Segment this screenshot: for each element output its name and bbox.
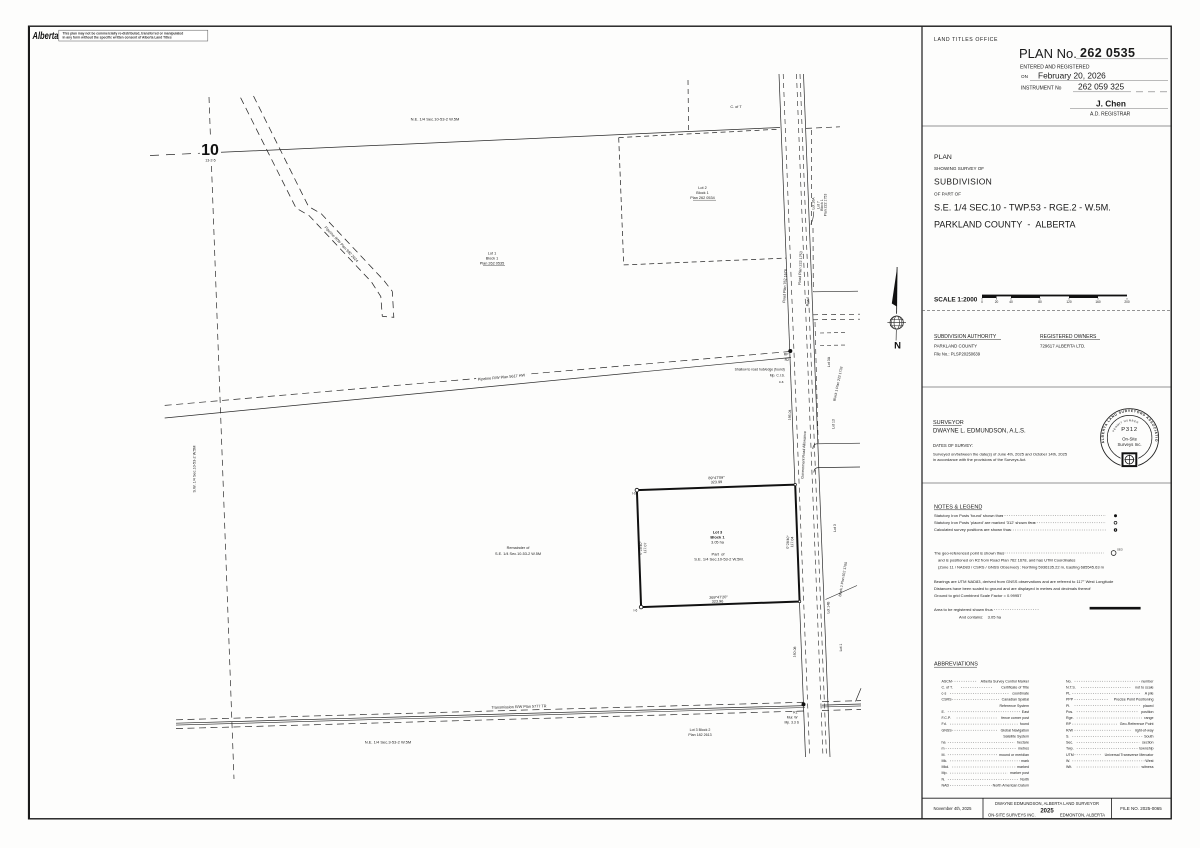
svg-text:Statutory Iron Posts 'placed': Statutory Iron Posts 'placed' are marked…	[934, 520, 1036, 525]
svg-text:J. Chen: J. Chen	[1096, 99, 1126, 109]
svg-text:hectare: hectare	[1017, 741, 1029, 745]
svg-text:N.T.S.: N.T.S.	[1066, 685, 1076, 689]
svg-text:S.E. 1/4 Sec.10-53-2 W.5M.: S.E. 1/4 Sec.10-53-2 W.5M.	[694, 556, 744, 561]
svg-text:Universal Transverse Mercator: Universal Transverse Mercator	[1105, 753, 1155, 757]
svg-text:I-6: I-6	[632, 492, 636, 496]
svg-text:S.W. 1/4 Sec.10-53-2 W.5M: S.W. 1/4 Sec.10-53-2 W.5M	[193, 446, 197, 493]
svg-text:Sec.: Sec.	[1066, 741, 1073, 745]
svg-text:C. of T.: C. of T.	[942, 685, 954, 689]
svg-text:November 4th, 2025: November 4th, 2025	[934, 806, 973, 811]
svg-text:40: 40	[1009, 300, 1013, 304]
svg-text:Satellite System: Satellite System	[1003, 735, 1029, 739]
svg-text:ON: ON	[1021, 74, 1028, 79]
svg-text:N.E. 1/4 Sec.10-53-2 W.5M: N.E. 1/4 Sec.10-53-2 W.5M	[411, 117, 460, 122]
svg-text:The geo-referenced point is sh: The geo-referenced point is shown thus	[934, 551, 1004, 556]
svg-text:No.: No.	[1066, 679, 1072, 683]
svg-text:Ground to grid Combined Scale: Ground to grid Combined Scale Factor = 0…	[934, 593, 1022, 598]
svg-text:range: range	[1144, 716, 1153, 720]
svg-text:File No.: PLSP20250639: File No.: PLSP20250639	[934, 352, 981, 357]
svg-text:mark: mark	[1021, 759, 1029, 763]
svg-text:section: section	[1142, 741, 1153, 745]
svg-text:INSTRUMENT No: INSTRUMENT No	[1021, 86, 1062, 92]
svg-text:Bearings are UTM NAD83, derive: Bearings are UTM NAD83, derived from GNS…	[934, 579, 1114, 584]
svg-text:marked: marked	[1017, 765, 1029, 769]
svg-text:117.04: 117.04	[790, 537, 794, 548]
svg-text:R2: R2	[785, 358, 789, 362]
svg-text:160.08: 160.08	[793, 646, 798, 657]
svg-text:S.: S.	[1066, 735, 1069, 739]
svg-text:Statutory Iron Posts 'found' s: Statutory Iron Posts 'found' shown thus	[934, 513, 1003, 518]
svg-text:DWAYNE EDMUNDSON, ALBERTA LAND: DWAYNE EDMUNDSON, ALBERTA LAND SURVEYOR	[995, 801, 1099, 806]
svg-text:R1: R1	[793, 711, 797, 715]
svg-text:number: number	[1141, 679, 1154, 683]
svg-text:RP: RP	[1066, 722, 1072, 726]
svg-text:m: m	[942, 747, 945, 751]
svg-text:P312: P312	[1121, 427, 1138, 433]
svg-text:mound or meridian: mound or meridian	[999, 753, 1029, 757]
svg-text:PLAN: PLAN	[934, 154, 952, 161]
svg-text:N.: N.	[942, 777, 946, 781]
svg-text:c-s: c-s	[779, 380, 784, 384]
svg-text:SCALE 1:2000: SCALE 1:2000	[934, 297, 978, 304]
svg-text:Mk.: Mk.	[942, 759, 948, 763]
svg-text:E.: E.	[942, 710, 945, 714]
svg-text:Pos.: Pos.	[1066, 710, 1073, 714]
svg-text:marker post: marker post	[1010, 771, 1029, 775]
svg-text:PLAN No.: PLAN No.	[1019, 46, 1077, 61]
svg-text:Area to be registered shown th: Area to be registered shown thus	[934, 607, 993, 612]
svg-text:ha: ha	[942, 741, 946, 745]
svg-text:Block 1: Block 1	[696, 191, 708, 195]
svg-text:GEO: GEO	[1117, 548, 1123, 552]
svg-text:Canadian Spatial: Canadian Spatial	[1002, 698, 1030, 702]
svg-text:C. of T: C. of T	[730, 105, 742, 109]
svg-text:SHOWING SURVEY OF: SHOWING SURVEY OF	[934, 166, 984, 171]
svg-text:Lot 3: Lot 3	[833, 524, 837, 532]
svg-text:CSRS: CSRS	[942, 698, 953, 702]
svg-text:position: position	[1141, 710, 1153, 714]
svg-text:Wit.: Wit.	[1066, 765, 1072, 769]
svg-text:729617 ALBERTA LTD.: 729617 ALBERTA LTD.	[1040, 344, 1085, 349]
svg-text:323.96: 323.96	[712, 599, 724, 603]
svg-text:A.D. REGISTRAR: A.D. REGISTRAR	[1090, 112, 1131, 118]
svg-text:UTM: UTM	[1066, 753, 1074, 757]
svg-text:February 20, 2026: February 20, 2026	[1038, 71, 1106, 81]
svg-text:in any form without the specif: in any form without the specific written…	[63, 35, 172, 39]
svg-text:I-6: I-6	[634, 609, 638, 613]
svg-text:in accordance with the provisi: in accordance with the provisions of the…	[933, 457, 1026, 462]
svg-text:Surveys Inc.: Surveys Inc.	[1118, 442, 1142, 447]
svg-text:Lot 14B: Lot 14B	[827, 601, 831, 614]
svg-text:F.C.P.: F.C.P.	[942, 716, 951, 720]
svg-text:Fd.: Fd.	[942, 722, 947, 726]
svg-text:North American Datum: North American Datum	[993, 784, 1029, 788]
svg-text:EDMONTON, ALBERTA: EDMONTON, ALBERTA	[1060, 812, 1105, 817]
svg-text:13-2-5: 13-2-5	[205, 159, 215, 163]
svg-text:NAD: NAD	[942, 784, 950, 788]
svg-text:and is positioned on R2 from R: and is positioned on R2 from Road Plan 7…	[938, 558, 1075, 563]
svg-text:PL: PL	[1066, 692, 1070, 696]
svg-text:GNSS: GNSS	[942, 728, 953, 732]
svg-text:ASCM: ASCM	[942, 679, 952, 683]
svg-text:S.E. 1/4 SEC.10 - TWP.53 - RGE: S.E. 1/4 SEC.10 - TWP.53 - RGE.2 - W.5M.	[934, 203, 1111, 213]
svg-text:Plan 262 0535: Plan 262 0535	[480, 262, 505, 266]
svg-text:Plan 182 2613: Plan 182 2613	[688, 733, 711, 737]
svg-text:OF PART OF: OF PART OF	[934, 192, 961, 197]
svg-text:c-s: c-s	[942, 692, 947, 696]
svg-text:LAND TITLES OFFICE: LAND TITLES OFFICE	[934, 37, 998, 43]
svg-text:S.E. 1/4 Sec.10-53-2 W.5M: S.E. 1/4 Sec.10-53-2 W.5M	[495, 552, 541, 556]
svg-text:2025: 2025	[1040, 809, 1054, 815]
svg-text:PPP: PPP	[1066, 698, 1074, 702]
svg-text:East: East	[1022, 710, 1029, 714]
svg-text:80: 80	[1038, 300, 1042, 304]
svg-text:Geo-Reference Point: Geo-Reference Point	[1120, 722, 1154, 726]
svg-text:South: South	[1144, 735, 1153, 739]
svg-text:3.05 ha: 3.05 ha	[711, 540, 725, 544]
svg-text:Block 1: Block 1	[486, 257, 498, 261]
svg-text:Mp. 3.3 S: Mp. 3.3 S	[784, 721, 799, 725]
svg-text:10: 10	[201, 142, 219, 159]
svg-text:262 059 325: 262 059 325	[1078, 82, 1125, 92]
svg-text:DATES OF SURVEY:: DATES OF SURVEY:	[933, 443, 973, 448]
svg-text:DWAYNE L. EDMUNDSON, A.L.S.: DWAYNE L. EDMUNDSON, A.L.S.	[933, 429, 1026, 435]
svg-text:Lot 16A: Lot 16A	[812, 197, 816, 210]
svg-text:Plan 222 1753: Plan 222 1753	[824, 194, 828, 217]
svg-text:R/W: R/W	[1066, 728, 1074, 732]
svg-text:ABBREVIATIONS: ABBREVIATIONS	[934, 662, 978, 668]
svg-text:Distances have been scaled to: Distances have been scaled to ground and…	[934, 586, 1091, 591]
svg-text:M.: M.	[942, 753, 946, 757]
svg-text:not to scale: not to scale	[1135, 685, 1153, 689]
svg-text:Lot 13: Lot 13	[832, 419, 836, 429]
svg-text:Lot 1: Lot 1	[839, 644, 843, 652]
svg-text:Mp.: Mp.	[942, 771, 948, 775]
svg-text:Block 1: Block 1	[710, 534, 725, 539]
svg-text:20: 20	[995, 300, 999, 304]
svg-text:120: 120	[1066, 300, 1072, 304]
svg-text:Remainder of: Remainder of	[507, 546, 531, 550]
svg-text:262 0535: 262 0535	[1080, 46, 1135, 60]
svg-text:West: West	[1145, 759, 1153, 763]
svg-text:N.E. 1/4 Sec.3-53-2 W.5M: N.E. 1/4 Sec.3-53-2 W.5M	[365, 740, 411, 745]
svg-text:Twp.: Twp.	[1066, 747, 1074, 751]
svg-text:SURVEYOR: SURVEYOR	[933, 420, 964, 426]
svg-text:Certificate of Title: Certificate of Title	[1001, 685, 1029, 689]
svg-text:Lot 3 Block 2: Lot 3 Block 2	[690, 728, 711, 732]
svg-text:323.99: 323.99	[711, 480, 723, 484]
svg-text:PARKLAND COUNTY: PARKLAND COUNTY	[934, 344, 977, 349]
svg-text:And contains: 3.05 ha: And contains: 3.05 ha	[959, 615, 1002, 620]
svg-text:placed: placed	[1143, 704, 1154, 708]
svg-text:Pl.: Pl.	[1066, 704, 1070, 708]
svg-text:right-of-way: right-of-way	[1135, 728, 1154, 732]
svg-text:Lot 3A: Lot 3A	[827, 356, 831, 367]
svg-text:A pile: A pile	[1145, 692, 1154, 696]
svg-text:metres: metres	[1018, 747, 1029, 751]
svg-text:Rge.: Rge.	[1066, 716, 1074, 720]
svg-text:0: 0	[981, 300, 983, 304]
svg-text:witness: witness	[1142, 765, 1154, 769]
svg-text:200: 200	[1124, 300, 1130, 304]
svg-text:FILE NO. 2025-0065: FILE NO. 2025-0065	[1120, 806, 1162, 811]
svg-text:Calculated survey positions ar: Calculated survey positions are shown th…	[934, 527, 1011, 532]
svg-text:PARKLAND COUNTY - ALBERTA: PARKLAND COUNTY - ALBERTA	[934, 220, 1076, 230]
svg-text:Alberta Survey Control Marker: Alberta Survey Control Marker	[981, 679, 1030, 683]
svg-text:SUBDIVISION: SUBDIVISION	[934, 177, 992, 187]
svg-text:117.07: 117.07	[643, 543, 647, 554]
svg-text:fence corner post: fence corner post	[1001, 716, 1029, 720]
svg-text:(Zone 11 / NAD83 / CSRS / GNSS: (Zone 11 / NAD83 / CSRS / GNSS Observed)…	[938, 564, 1105, 569]
svg-text:Mp. C.I.S.: Mp. C.I.S.	[770, 374, 785, 378]
svg-text:Road: Road	[806, 297, 810, 306]
svg-text:ON-SITE SURVEYS INC.: ON-SITE SURVEYS INC.	[988, 812, 1036, 817]
svg-text:Lot 2: Lot 2	[698, 186, 706, 190]
svg-text:Mur. W: Mur. W	[787, 716, 799, 720]
svg-text:Alberta: Alberta	[32, 31, 59, 42]
svg-text:Plan 262 0534: Plan 262 0534	[690, 196, 715, 200]
svg-text:North: North	[1020, 777, 1029, 781]
svg-text:Global Navigation: Global Navigation	[1001, 728, 1029, 732]
svg-text:166.04: 166.04	[788, 409, 793, 420]
svg-text:township: township	[1139, 747, 1153, 751]
svg-text:W.: W.	[1066, 759, 1070, 763]
svg-text:160: 160	[1095, 300, 1101, 304]
svg-text:Reference System: Reference System	[999, 704, 1029, 708]
svg-text:RP: RP	[784, 353, 789, 357]
svg-text:Surveyed on/between the date(s: Surveyed on/between the date(s) of June …	[933, 451, 1068, 456]
svg-text:N: N	[894, 341, 901, 352]
svg-text:found: found	[1020, 722, 1029, 726]
svg-text:Mkd.: Mkd.	[942, 765, 950, 769]
svg-text:coordinate: coordinate	[1012, 692, 1029, 696]
svg-text:Lot 1: Lot 1	[488, 252, 496, 256]
svg-text:On-Site: On-Site	[1122, 437, 1137, 442]
svg-text:Shallow to road hub/edge (foun: Shallow to road hub/edge (found)	[735, 368, 785, 372]
svg-text:Precise Point Positioning: Precise Point Positioning	[1114, 698, 1154, 702]
